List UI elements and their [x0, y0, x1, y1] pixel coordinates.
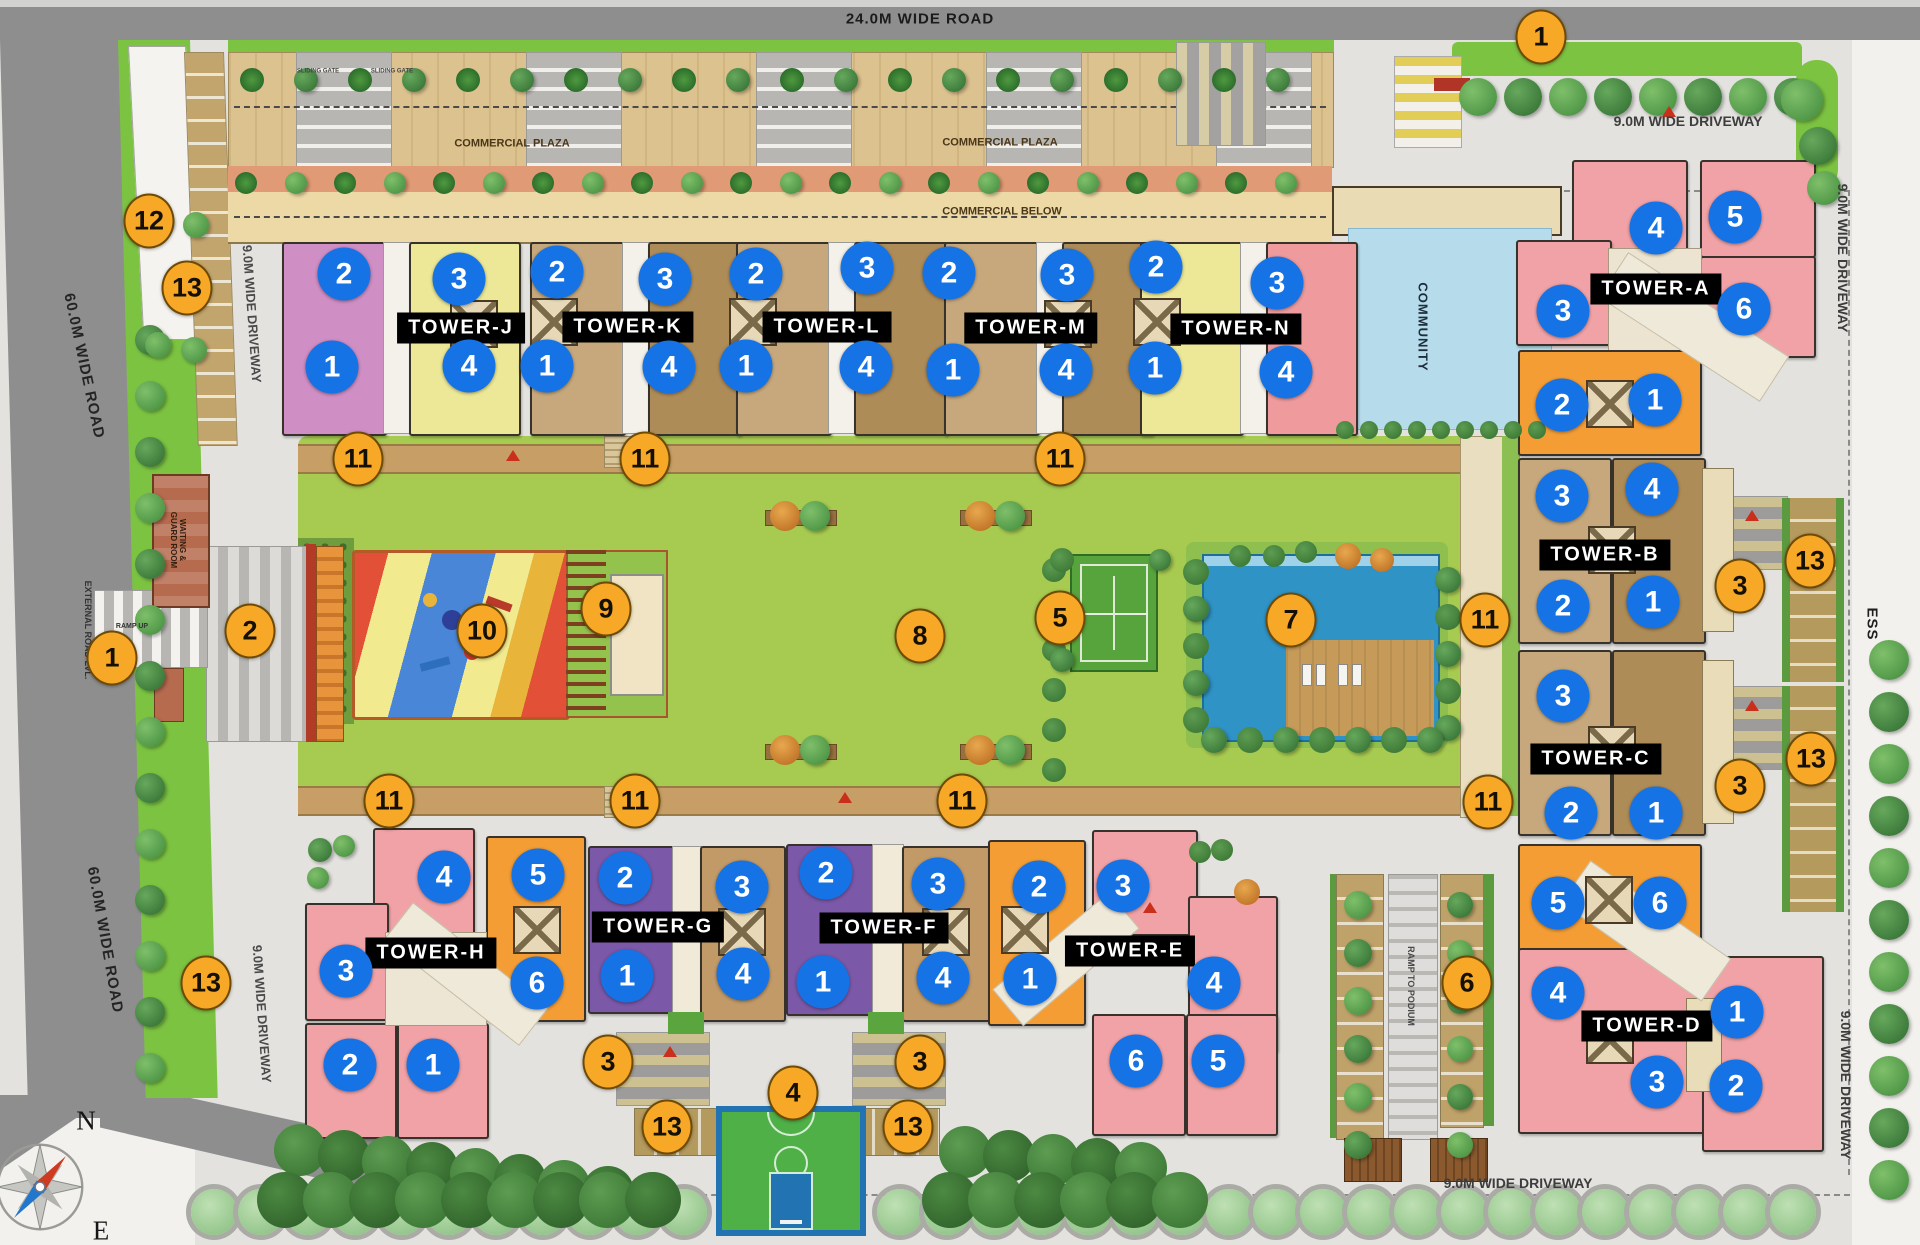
- orange-legend-marker: 3: [895, 1035, 946, 1090]
- orange-legend-marker: 13: [162, 261, 213, 316]
- blue-unit-marker: 4: [840, 341, 893, 394]
- blue-unit-marker: 3: [1097, 860, 1150, 913]
- blue-unit-marker: 2: [531, 246, 584, 299]
- blue-unit-marker: 3: [1251, 257, 1304, 310]
- orange-legend-marker: 1: [1516, 10, 1567, 65]
- blue-unit-marker: 4: [643, 341, 696, 394]
- blue-unit-marker: 6: [1110, 1035, 1163, 1088]
- map-text-label: RAMP TO PODIUM: [1406, 946, 1416, 1026]
- orange-legend-marker: 6: [1442, 956, 1493, 1011]
- blue-unit-marker: 2: [1536, 379, 1589, 432]
- orange-legend-marker: 3: [1715, 759, 1766, 814]
- blue-unit-marker: 3: [912, 858, 965, 911]
- blue-unit-marker: 5: [1709, 191, 1762, 244]
- blue-unit-marker: 2: [730, 248, 783, 301]
- tower-name-label: TOWER-A: [1590, 274, 1721, 305]
- map-text-label: COMMUNITY: [1415, 282, 1430, 371]
- blue-unit-marker: 2: [318, 248, 371, 301]
- orange-legend-marker: 13: [1785, 534, 1836, 589]
- orange-legend-marker: 11: [937, 774, 988, 829]
- blue-unit-marker: 4: [717, 948, 770, 1001]
- direction-arrow: [1745, 700, 1759, 711]
- blue-unit-marker: 4: [917, 952, 970, 1005]
- tower-name-label: TOWER-E: [1065, 936, 1195, 967]
- direction-arrow: [506, 450, 520, 461]
- tower-name-label: TOWER-H: [365, 938, 496, 969]
- orange-legend-marker: 13: [642, 1100, 693, 1155]
- blue-unit-marker: 6: [1718, 283, 1771, 336]
- tower-name-label: TOWER-M: [964, 313, 1097, 344]
- blue-unit-marker: 4: [1040, 344, 1093, 397]
- map-text-label: SLIDING GATE: [371, 69, 413, 76]
- blue-unit-marker: 2: [1013, 861, 1066, 914]
- blue-unit-marker: 1: [1129, 342, 1182, 395]
- blue-unit-marker: 3: [716, 861, 769, 914]
- direction-arrow: [1143, 902, 1157, 913]
- map-text-label: COMMERCIAL PLAZA: [454, 138, 569, 151]
- blue-unit-marker: 5: [512, 849, 565, 902]
- markers-layer: 2314231423142314231445362134213215641324…: [0, 0, 1920, 1245]
- map-text-label: COMMERCIAL BELOW: [942, 206, 1062, 219]
- map-text-label: ESS: [1863, 607, 1880, 640]
- blue-unit-marker: 3: [1536, 470, 1589, 523]
- tower-name-label: TOWER-F: [820, 913, 949, 944]
- blue-unit-marker: 3: [1537, 285, 1590, 338]
- blue-unit-marker: 4: [1532, 967, 1585, 1020]
- blue-unit-marker: 2: [1710, 1060, 1763, 1113]
- direction-arrow: [663, 1046, 677, 1057]
- blue-unit-marker: 1: [797, 956, 850, 1009]
- blue-unit-marker: 3: [433, 253, 486, 306]
- map-text-label: SLIDING GATE: [297, 69, 339, 76]
- blue-unit-marker: 3: [320, 945, 373, 998]
- blue-unit-marker: 1: [1630, 787, 1683, 840]
- map-text-label: E: [93, 1215, 110, 1245]
- orange-legend-marker: 11: [610, 774, 661, 829]
- blue-unit-marker: 1: [521, 340, 574, 393]
- blue-unit-marker: 1: [1711, 986, 1764, 1039]
- map-text-label: 9.0M WIDE DRIVEWAY: [1835, 184, 1851, 333]
- blue-unit-marker: 2: [1130, 241, 1183, 294]
- orange-legend-marker: 11: [1035, 432, 1086, 487]
- map-text-label: COMMERCIAL PLAZA: [942, 137, 1057, 150]
- orange-legend-marker: 10: [457, 604, 508, 659]
- orange-legend-marker: 4: [768, 1066, 819, 1121]
- blue-unit-marker: 2: [324, 1039, 377, 1092]
- blue-unit-marker: 1: [927, 344, 980, 397]
- orange-legend-marker: 3: [1715, 559, 1766, 614]
- tower-name-label: TOWER-D: [1581, 1011, 1712, 1042]
- tower-name-label: TOWER-C: [1530, 744, 1661, 775]
- orange-legend-marker: 3: [583, 1035, 634, 1090]
- blue-unit-marker: 2: [800, 847, 853, 900]
- orange-legend-marker: 12: [124, 194, 175, 249]
- direction-arrow: [838, 792, 852, 803]
- site-plan-canvas: 24.0M WIDE ROAD9.0M WIDE DRIVEWAY9.0M WI…: [0, 0, 1920, 1245]
- map-text-label: WAITING & GUARD ROOM: [169, 509, 187, 571]
- blue-unit-marker: 1: [601, 950, 654, 1003]
- tower-name-label: TOWER-K: [562, 312, 693, 343]
- compass-icon: [0, 1139, 88, 1235]
- blue-unit-marker: 4: [1626, 463, 1679, 516]
- map-text-label: 9.0M WIDE DRIVEWAY: [1614, 113, 1763, 129]
- map-text-label: 9.0M WIDE DRIVEWAY: [1444, 1175, 1593, 1191]
- blue-unit-marker: 4: [1630, 202, 1683, 255]
- blue-unit-marker: 5: [1532, 877, 1585, 930]
- map-text-label: 9.0M WIDE DRIVEWAY: [1838, 1011, 1854, 1160]
- orange-legend-marker: 5: [1035, 591, 1086, 646]
- orange-legend-marker: 11: [1460, 593, 1511, 648]
- orange-legend-marker: 1: [87, 631, 138, 686]
- tower-name-label: TOWER-L: [763, 312, 892, 343]
- direction-arrow: [1745, 510, 1759, 521]
- map-text-label: RAMP UP: [116, 623, 148, 631]
- blue-unit-marker: 2: [1537, 580, 1590, 633]
- blue-unit-marker: 3: [841, 242, 894, 295]
- orange-legend-marker: 11: [364, 774, 415, 829]
- orange-legend-marker: 11: [620, 432, 671, 487]
- orange-legend-marker: 2: [225, 604, 276, 659]
- blue-unit-marker: 1: [1004, 953, 1057, 1006]
- blue-unit-marker: 4: [418, 851, 471, 904]
- orange-legend-marker: 13: [883, 1100, 934, 1155]
- blue-unit-marker: 1: [407, 1039, 460, 1092]
- blue-unit-marker: 4: [443, 340, 496, 393]
- blue-unit-marker: 1: [306, 341, 359, 394]
- blue-unit-marker: 3: [1041, 249, 1094, 302]
- tower-name-label: TOWER-G: [592, 912, 724, 943]
- blue-unit-marker: 4: [1188, 957, 1241, 1010]
- blue-unit-marker: 3: [1631, 1056, 1684, 1109]
- map-text-label: 24.0M WIDE ROAD: [846, 10, 994, 27]
- blue-unit-marker: 1: [720, 340, 773, 393]
- blue-unit-marker: 2: [1545, 787, 1598, 840]
- orange-legend-marker: 13: [1786, 732, 1837, 787]
- blue-unit-marker: 3: [639, 253, 692, 306]
- orange-legend-marker: 11: [333, 432, 384, 487]
- tower-name-label: TOWER-J: [397, 313, 525, 344]
- blue-unit-marker: 6: [1634, 877, 1687, 930]
- blue-unit-marker: 1: [1629, 374, 1682, 427]
- orange-legend-marker: 8: [895, 609, 946, 664]
- blue-unit-marker: 5: [1192, 1035, 1245, 1088]
- blue-unit-marker: 6: [511, 957, 564, 1010]
- blue-unit-marker: 1: [1627, 576, 1680, 629]
- blue-unit-marker: 2: [599, 852, 652, 905]
- orange-legend-marker: 13: [181, 956, 232, 1011]
- orange-legend-marker: 7: [1266, 593, 1317, 648]
- map-text-label: N: [76, 1105, 96, 1136]
- orange-legend-marker: 9: [581, 582, 632, 637]
- tower-name-label: TOWER-N: [1170, 314, 1301, 345]
- blue-unit-marker: 2: [923, 247, 976, 300]
- blue-unit-marker: 3: [1537, 670, 1590, 723]
- blue-unit-marker: 4: [1260, 346, 1313, 399]
- orange-legend-marker: 11: [1463, 775, 1514, 830]
- tower-name-label: TOWER-B: [1539, 540, 1670, 571]
